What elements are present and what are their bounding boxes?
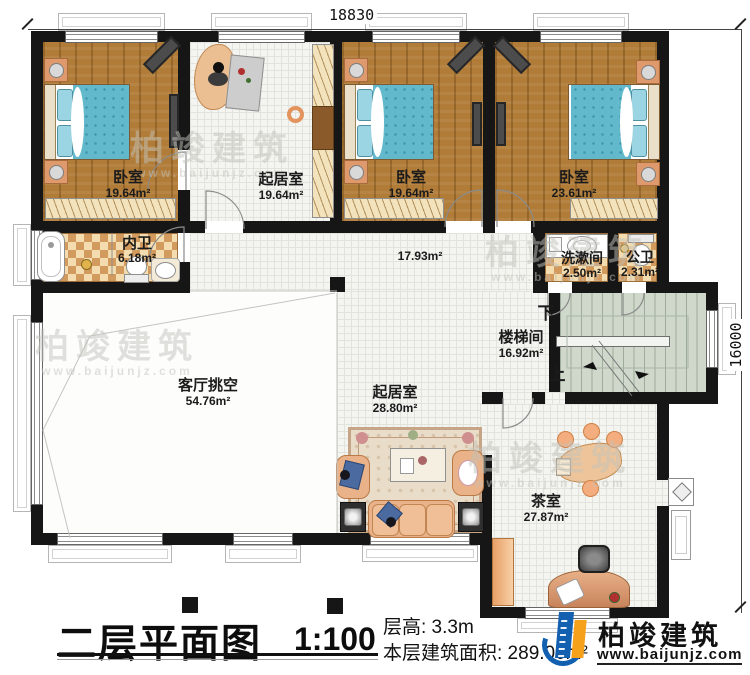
porch-column	[182, 597, 198, 613]
wall-segment	[178, 31, 190, 150]
room-label-wash-room: 洗漱间	[561, 251, 603, 266]
round-stool	[287, 106, 304, 123]
bathtub-drain	[48, 242, 54, 248]
room-area-bedroom-3: 23.61m²	[552, 187, 597, 200]
wall-segment	[565, 392, 718, 404]
wall-segment	[706, 282, 718, 310]
tea-stool	[606, 431, 623, 448]
wall-segment	[31, 31, 43, 230]
room-area-stairwell: 16.92m²	[499, 347, 544, 360]
window	[706, 310, 718, 368]
wall-tv	[496, 102, 506, 146]
room-label-bedroom-1: 卧室	[113, 170, 143, 186]
window	[218, 31, 305, 43]
title-underline-thin	[57, 659, 378, 660]
bed	[344, 84, 434, 160]
room-label-stairwell: 楼梯间	[498, 330, 543, 346]
rug-flower	[356, 432, 368, 444]
tea-stool	[583, 423, 600, 440]
floor-height-note: 层高: 3.3m	[383, 612, 474, 639]
room-area-public-bath: 2.31m²	[621, 266, 659, 279]
room-label-public-bath: 公卫	[626, 250, 654, 265]
window-sill	[225, 545, 301, 563]
room-label-tea-room: 茶室	[531, 494, 561, 510]
stair-entry-patch	[545, 392, 565, 404]
dimension-top-value: 18830	[326, 6, 377, 24]
bed-headboard	[648, 85, 659, 159]
toilet-tank	[628, 234, 654, 243]
bed	[44, 84, 130, 160]
bed-headboard	[45, 85, 56, 159]
room-area-tea-room: 27.87m²	[524, 511, 569, 524]
desk-mat	[225, 54, 264, 111]
outdoor-unit-inner	[675, 516, 687, 554]
wall-segment	[608, 221, 618, 293]
nightstand	[344, 160, 368, 184]
rug-flower	[408, 430, 418, 440]
flower-decor	[238, 68, 245, 75]
tea-door-patch	[503, 392, 532, 404]
sofa-cushion	[426, 504, 453, 536]
company-logo: 柏竣建筑 www.baijunjz.com	[540, 608, 750, 670]
table-decor	[418, 456, 427, 465]
lamp-side-table	[458, 502, 484, 532]
wall-segment	[657, 506, 669, 607]
rug-flower	[462, 432, 474, 444]
flower-decor	[246, 78, 251, 83]
wall-segment	[31, 280, 43, 322]
wardrobe	[344, 198, 444, 219]
floor-plan-canvas: 柏竣建筑 www.baijunjz.com 柏竣建筑 www.baijunjz.…	[0, 0, 750, 675]
room-label-sitting-2: 起居室	[372, 385, 417, 401]
hallway-floor	[190, 233, 533, 291]
nightstand	[344, 58, 368, 82]
nightstand	[636, 162, 660, 186]
wall-segment	[531, 221, 669, 233]
title-underline	[57, 653, 378, 656]
window	[540, 31, 622, 43]
window	[372, 31, 460, 43]
wall-segment	[178, 190, 190, 228]
wall-tv	[169, 94, 179, 148]
logo-company-url: www.baijunjz.com	[597, 646, 742, 665]
drawing-title: 二层平面图	[57, 613, 262, 669]
room-area-bedroom-1: 19.64m²	[106, 187, 151, 200]
room-label-sitting-1: 起居室	[258, 172, 303, 188]
wardrobe	[45, 198, 176, 219]
tea-stool	[557, 431, 574, 448]
sheet-fold	[620, 87, 633, 157]
room-area-hallway: 17.93m²	[398, 250, 443, 263]
stair-up-label: 上	[549, 366, 566, 384]
room-area-sitting-1: 19.64m²	[259, 189, 304, 202]
tea-shelf	[556, 458, 571, 476]
nightstand	[44, 58, 68, 82]
wall-segment	[31, 505, 43, 545]
wall-segment	[482, 392, 503, 404]
window-sill	[13, 224, 31, 286]
wall-segment	[163, 533, 233, 545]
shower-head-icon	[81, 259, 92, 270]
nightstand	[44, 160, 68, 184]
stair-landing-rail	[556, 336, 670, 347]
room-area-bedroom-2: 19.64m²	[389, 187, 434, 200]
person-head	[340, 470, 350, 480]
window-sill	[48, 545, 172, 563]
column	[330, 277, 345, 292]
porch-column	[327, 598, 343, 614]
window	[31, 322, 43, 505]
wall-segment	[31, 282, 190, 293]
logo-building-orange-icon	[571, 620, 586, 658]
room-area-sitting-2: 28.80m²	[373, 402, 418, 415]
tea-cabinet	[492, 538, 514, 606]
room-area-inner-bath: 6.18m²	[118, 252, 156, 265]
living-void-floor	[43, 293, 337, 533]
wall-segment	[533, 221, 545, 293]
wall-segment	[243, 221, 446, 233]
lamp-side-table	[340, 502, 366, 532]
sheet-fold	[371, 87, 384, 157]
window	[233, 533, 293, 545]
bed	[568, 84, 660, 160]
wall-segment	[483, 31, 495, 233]
flower-decor	[609, 592, 620, 603]
wall-segment	[706, 368, 718, 404]
wardrobe	[570, 198, 658, 219]
coffee-table	[390, 448, 446, 482]
tea-stool	[582, 480, 599, 497]
room-label-inner-bath: 内卫	[122, 236, 152, 252]
person-head	[213, 62, 224, 73]
room-label-bedroom-3: 卧室	[559, 170, 589, 186]
window	[65, 31, 158, 43]
sink	[155, 262, 176, 279]
pillow	[631, 125, 647, 157]
armchair-pillow	[458, 460, 478, 486]
wall-segment	[657, 404, 669, 480]
desk-chair	[578, 545, 610, 573]
sofa-cushion	[399, 504, 426, 536]
room-area-wash-room: 2.50m²	[563, 267, 601, 280]
nightstand	[636, 60, 660, 84]
wall-segment	[293, 533, 370, 545]
bed-headboard	[345, 85, 356, 159]
dimension-right-value: 16000	[727, 319, 745, 371]
stair-down-label: 下	[538, 305, 555, 323]
desk-chair-person	[208, 72, 228, 86]
window-sill	[362, 545, 478, 562]
window	[57, 533, 163, 545]
room-area-living-void: 54.76m²	[186, 395, 231, 408]
pillow	[631, 89, 647, 121]
person-head	[386, 517, 396, 527]
wall-segment	[532, 392, 545, 404]
table-decor	[400, 458, 414, 474]
sheet-fold	[71, 87, 84, 157]
closet-cabinet	[312, 106, 334, 150]
room-label-bedroom-2: 卧室	[396, 170, 426, 186]
dimension-line-top	[28, 29, 742, 30]
room-label-living-void: 客厅挑空	[178, 378, 238, 394]
toilet-tank	[124, 274, 149, 283]
window-sill	[13, 315, 31, 512]
wall-tv	[472, 102, 482, 146]
